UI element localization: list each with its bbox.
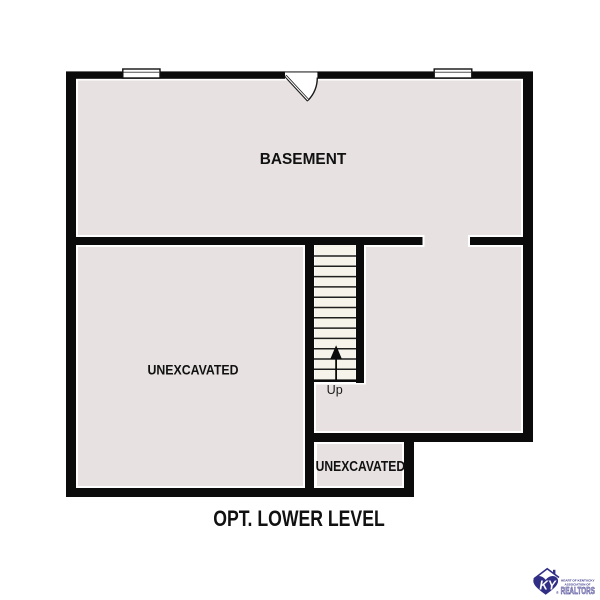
svg-text:UNEXCAVATED: UNEXCAVATED [148, 362, 239, 378]
svg-text:UNEXCAVATED: UNEXCAVATED [316, 459, 406, 475]
svg-text:BASEMENT: BASEMENT [260, 151, 347, 168]
svg-text:®: ® [556, 591, 559, 595]
svg-text:REALTORS: REALTORS [561, 586, 596, 597]
svg-text:Up: Up [327, 383, 343, 397]
svg-text:OPT. LOWER LEVEL: OPT. LOWER LEVEL [213, 506, 385, 531]
svg-text:KY: KY [539, 578, 557, 593]
